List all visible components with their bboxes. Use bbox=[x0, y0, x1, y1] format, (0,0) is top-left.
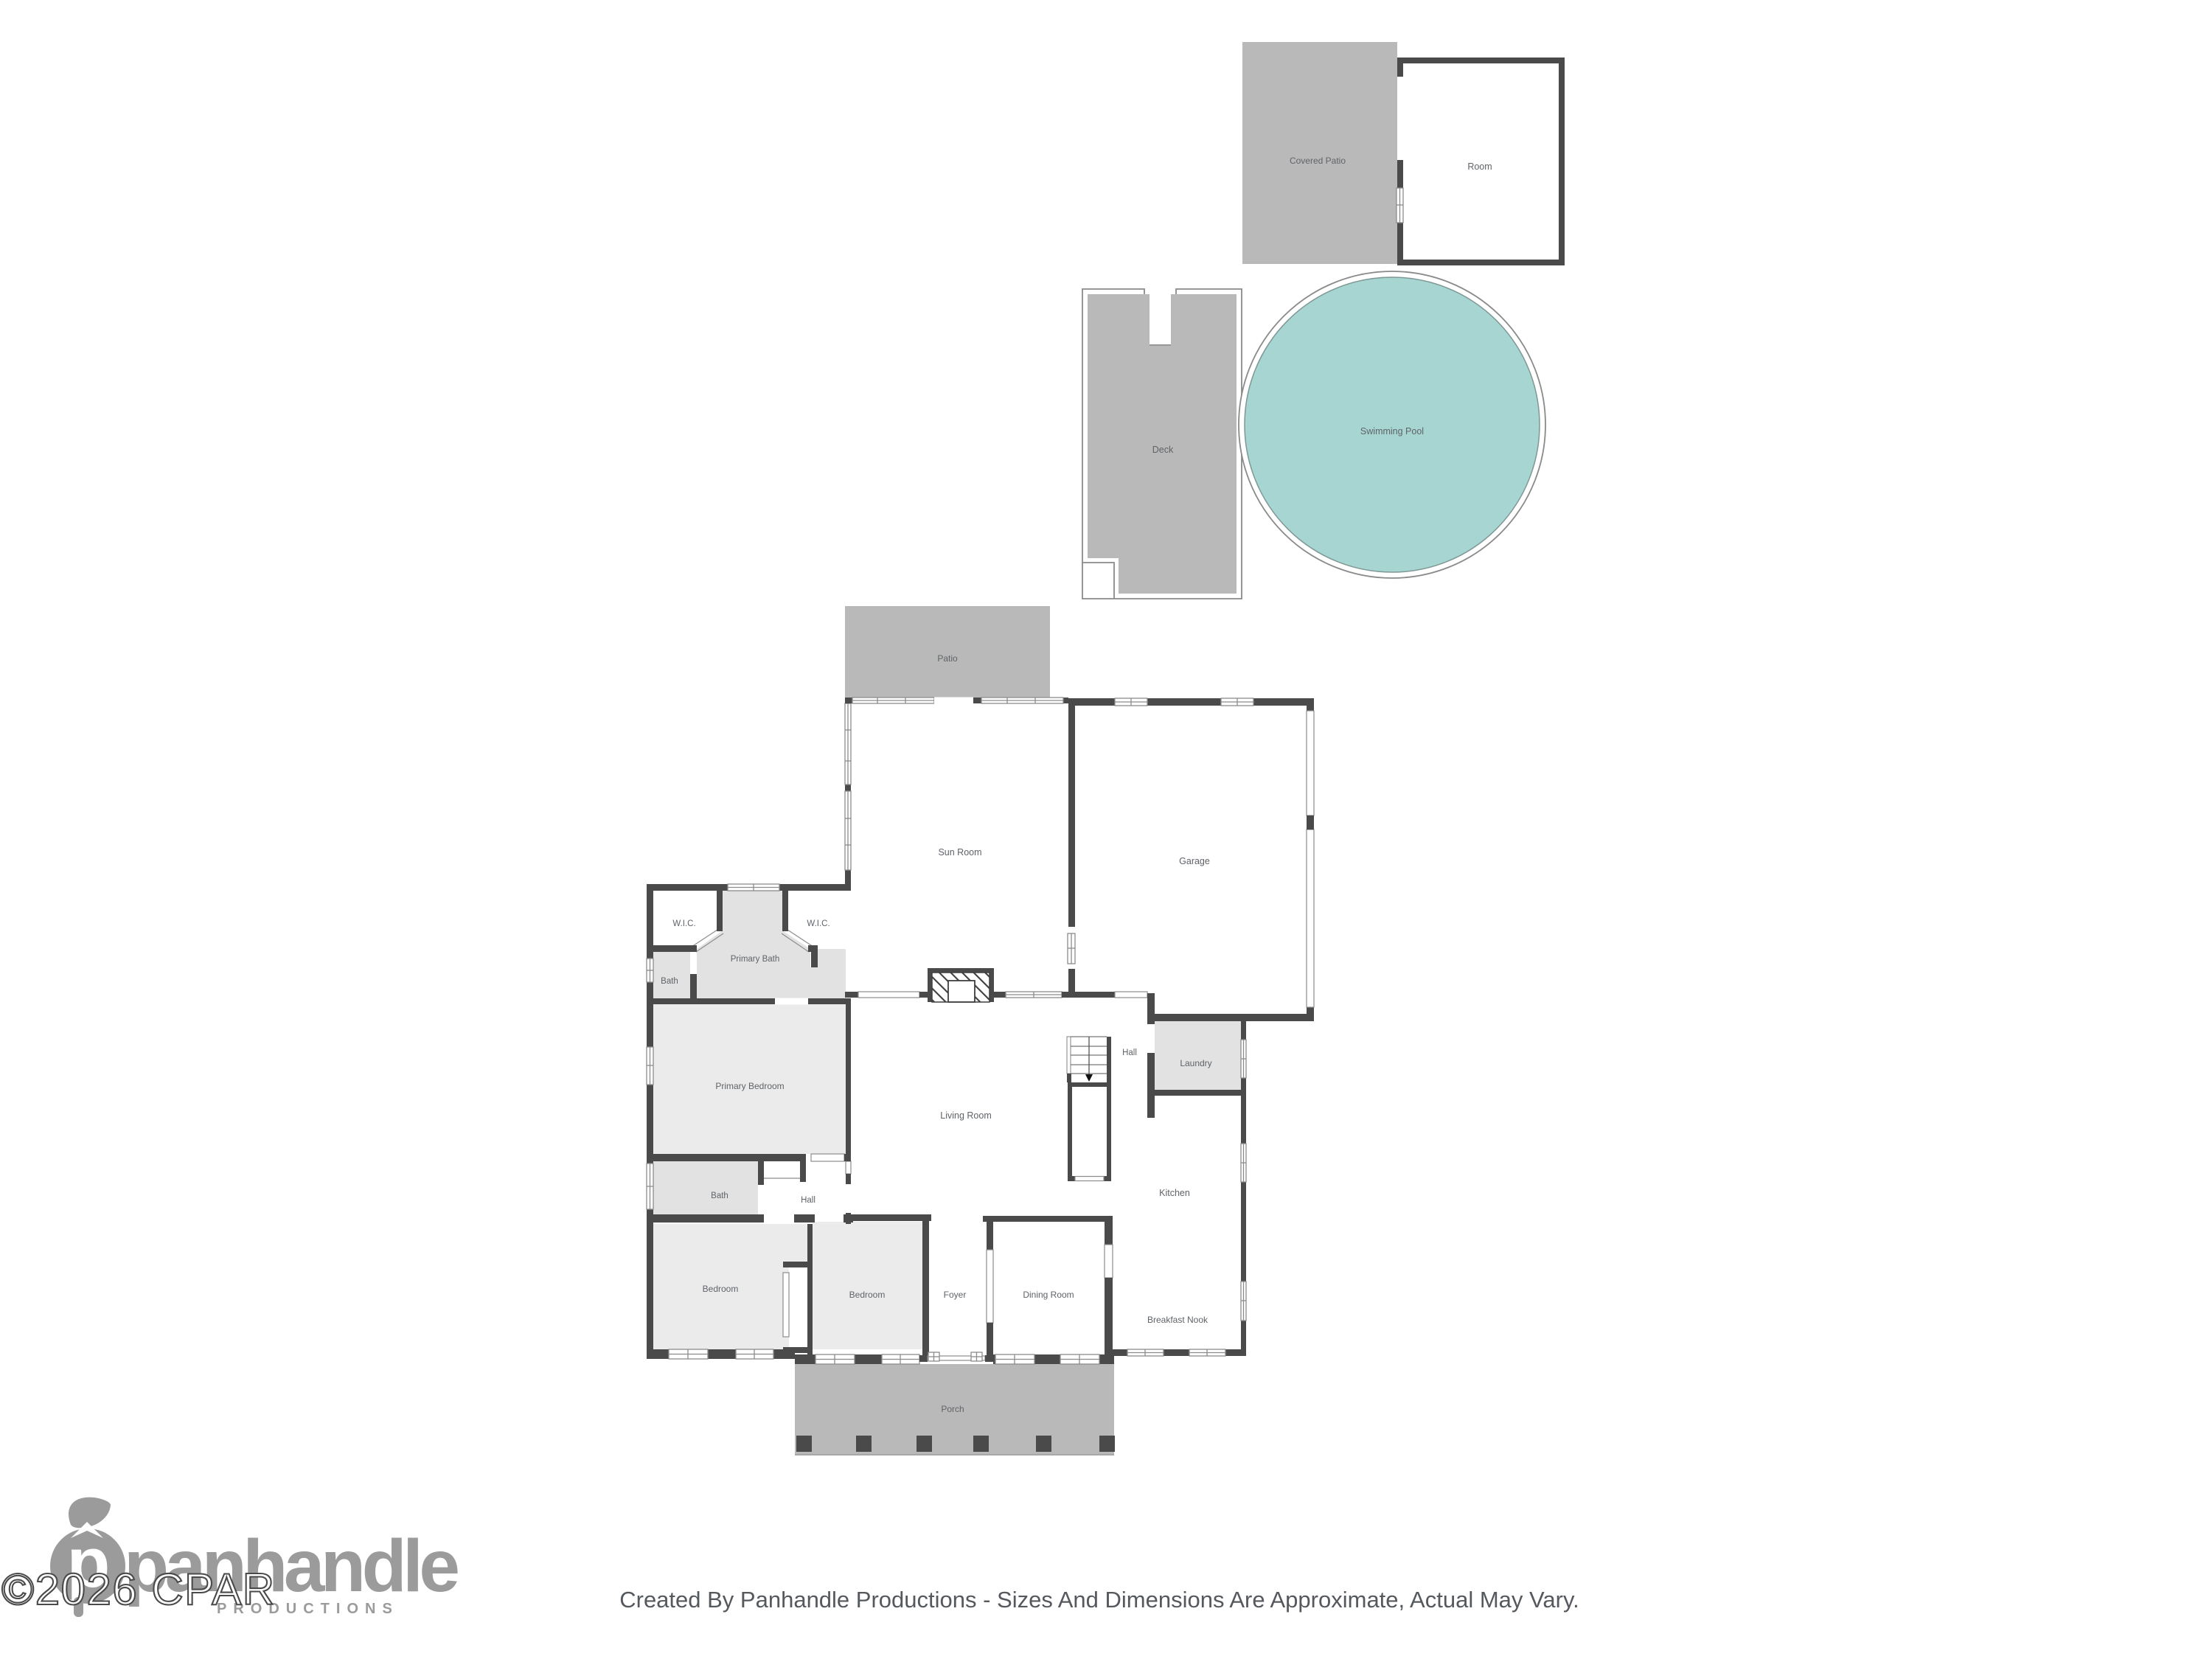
svg-text:Covered Patio: Covered Patio bbox=[1290, 156, 1346, 166]
svg-text:Hall: Hall bbox=[801, 1196, 815, 1205]
svg-text:W.I.C.: W.I.C. bbox=[807, 919, 829, 928]
svg-text:Porch: Porch bbox=[941, 1404, 964, 1414]
svg-text:W.I.C.: W.I.C. bbox=[672, 919, 695, 928]
svg-text:Hall: Hall bbox=[1122, 1048, 1137, 1057]
svg-text:Bedroom: Bedroom bbox=[703, 1284, 739, 1294]
svg-text:Dining Room: Dining Room bbox=[1023, 1290, 1074, 1300]
svg-text:Laundry: Laundry bbox=[1180, 1058, 1211, 1068]
svg-text:Kitchen: Kitchen bbox=[1159, 1188, 1190, 1198]
svg-text:Created By Panhandle Productio: Created By Panhandle Productions - Sizes… bbox=[619, 1587, 1579, 1613]
svg-text:Bath: Bath bbox=[711, 1192, 728, 1200]
svg-text:Room: Room bbox=[1467, 161, 1492, 172]
svg-text:Breakfast Nook: Breakfast Nook bbox=[1147, 1315, 1208, 1325]
svg-text:Deck: Deck bbox=[1152, 445, 1174, 455]
svg-text:Foyer: Foyer bbox=[944, 1290, 967, 1300]
svg-text:Sun Room: Sun Room bbox=[938, 847, 981, 858]
svg-text:Primary Bath: Primary Bath bbox=[731, 955, 779, 964]
svg-text:Patio: Patio bbox=[937, 653, 958, 664]
svg-text:Living Room: Living Room bbox=[940, 1110, 991, 1121]
svg-text:Bath: Bath bbox=[661, 977, 678, 986]
svg-text:Primary Bedroom: Primary Bedroom bbox=[715, 1081, 784, 1091]
svg-text:©2026 CPAR: ©2026 CPAR bbox=[1, 1565, 276, 1614]
svg-text:Swimming Pool: Swimming Pool bbox=[1360, 426, 1424, 437]
svg-text:Garage: Garage bbox=[1179, 856, 1210, 866]
svg-text:Bedroom: Bedroom bbox=[849, 1290, 886, 1300]
